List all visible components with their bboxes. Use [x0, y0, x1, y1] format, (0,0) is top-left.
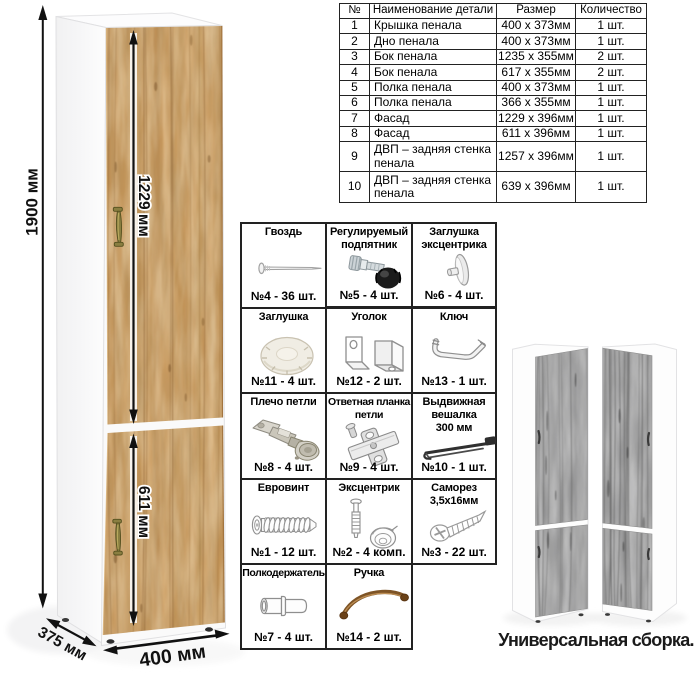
svg-text:1229 мм: 1229 мм: [135, 175, 152, 237]
svg-text:611 мм: 611 мм: [135, 486, 152, 538]
svg-text:1900 мм: 1900 мм: [23, 168, 42, 236]
